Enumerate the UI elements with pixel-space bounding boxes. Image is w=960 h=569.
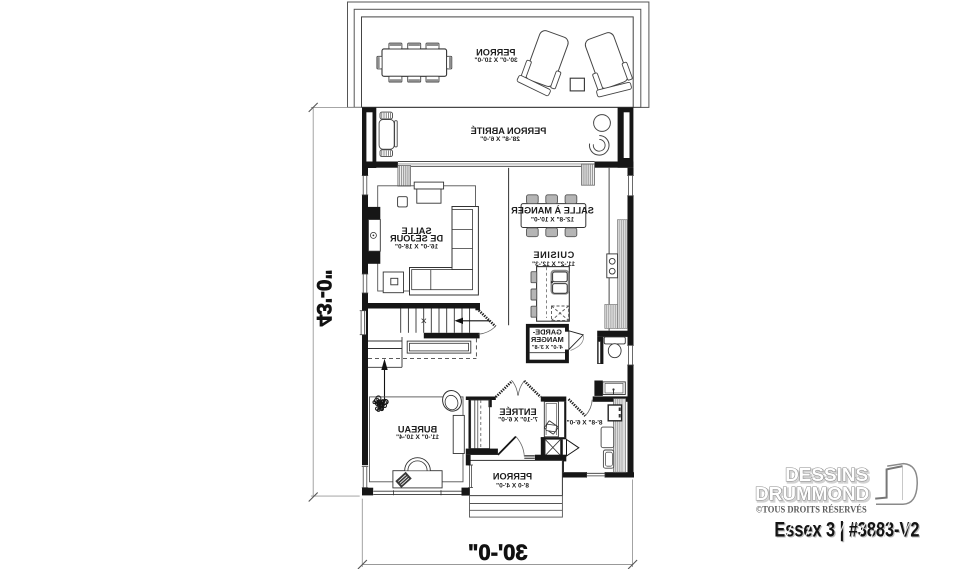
svg-text:43'-0": 43'-0" <box>312 270 335 327</box>
svg-text:8'-0 X 4'-0": 8'-0 X 4'-0" <box>496 482 529 489</box>
svg-text:Essex 3 | #3883-V2: Essex 3 | #3883-V2 <box>774 517 919 541</box>
svg-text:CUISINE: CUISINE <box>533 250 574 260</box>
svg-text:28'-8" X 6'-0": 28'-8" X 6'-0" <box>480 136 520 143</box>
svg-text:BUREAU: BUREAU <box>397 424 437 434</box>
svg-text:PERRON: PERRON <box>492 472 532 482</box>
svg-text:16'-0" X 18'-0": 16'-0" X 18'-0" <box>395 243 438 250</box>
svg-text:SALLE À MANGER: SALLE À MANGER <box>511 204 594 215</box>
svg-text:30'-0" X 10'-0": 30'-0" X 10'-0" <box>474 57 517 64</box>
svg-text:8'-8" X 6'-0": 8'-8" X 6'-0" <box>567 420 603 427</box>
svg-text:ENTRÉE: ENTRÉE <box>499 406 536 417</box>
svg-text:DRUMMOND: DRUMMOND <box>755 483 869 504</box>
svg-text:PERRON: PERRON <box>476 47 516 57</box>
svg-text:DESSINS: DESSINS <box>785 464 868 485</box>
svg-text:MANGER: MANGER <box>530 335 564 344</box>
svg-text:11'-2" X 12'-3": 11'-2" X 12'-3" <box>532 261 575 268</box>
svg-text:DE SÉJOUR: DE SÉJOUR <box>390 233 443 244</box>
svg-text:7'-10" X 6'-0": 7'-10" X 6'-0" <box>498 417 538 424</box>
svg-text:©TOUS DROITS RÉSERVÉS: ©TOUS DROITS RÉSERVÉS <box>756 505 867 515</box>
svg-text:11'-0" X 10'-4": 11'-0" X 10'-4" <box>396 434 439 441</box>
svg-text:4'-0" X 3'-8": 4'-0" X 3'-8" <box>531 345 562 351</box>
svg-text:PERRON ABRITÉ: PERRON ABRITÉ <box>471 125 547 136</box>
svg-text:12'-8" X 10'-0": 12'-8" X 10'-0" <box>531 217 574 224</box>
svg-text:30'-0": 30'-0" <box>468 540 528 565</box>
